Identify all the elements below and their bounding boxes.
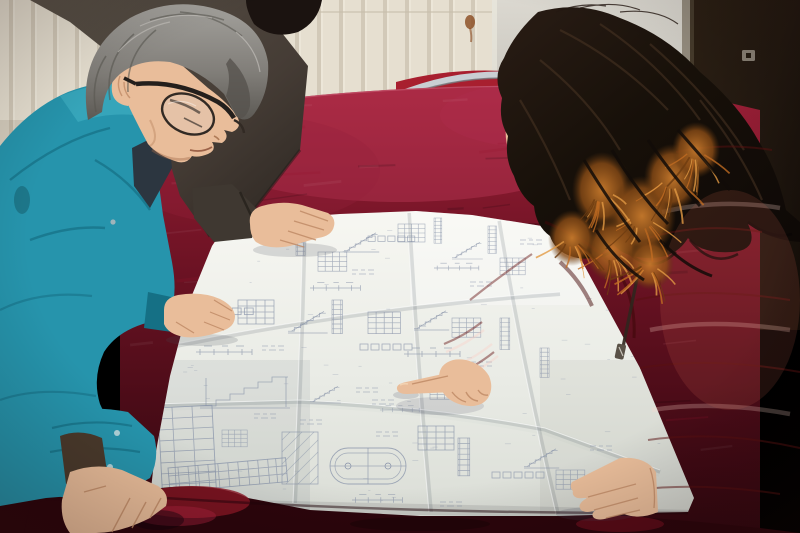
photo-blueprint-review: Two workers reviewing a large folded con… (0, 0, 800, 533)
vignette-overlay (0, 0, 800, 533)
